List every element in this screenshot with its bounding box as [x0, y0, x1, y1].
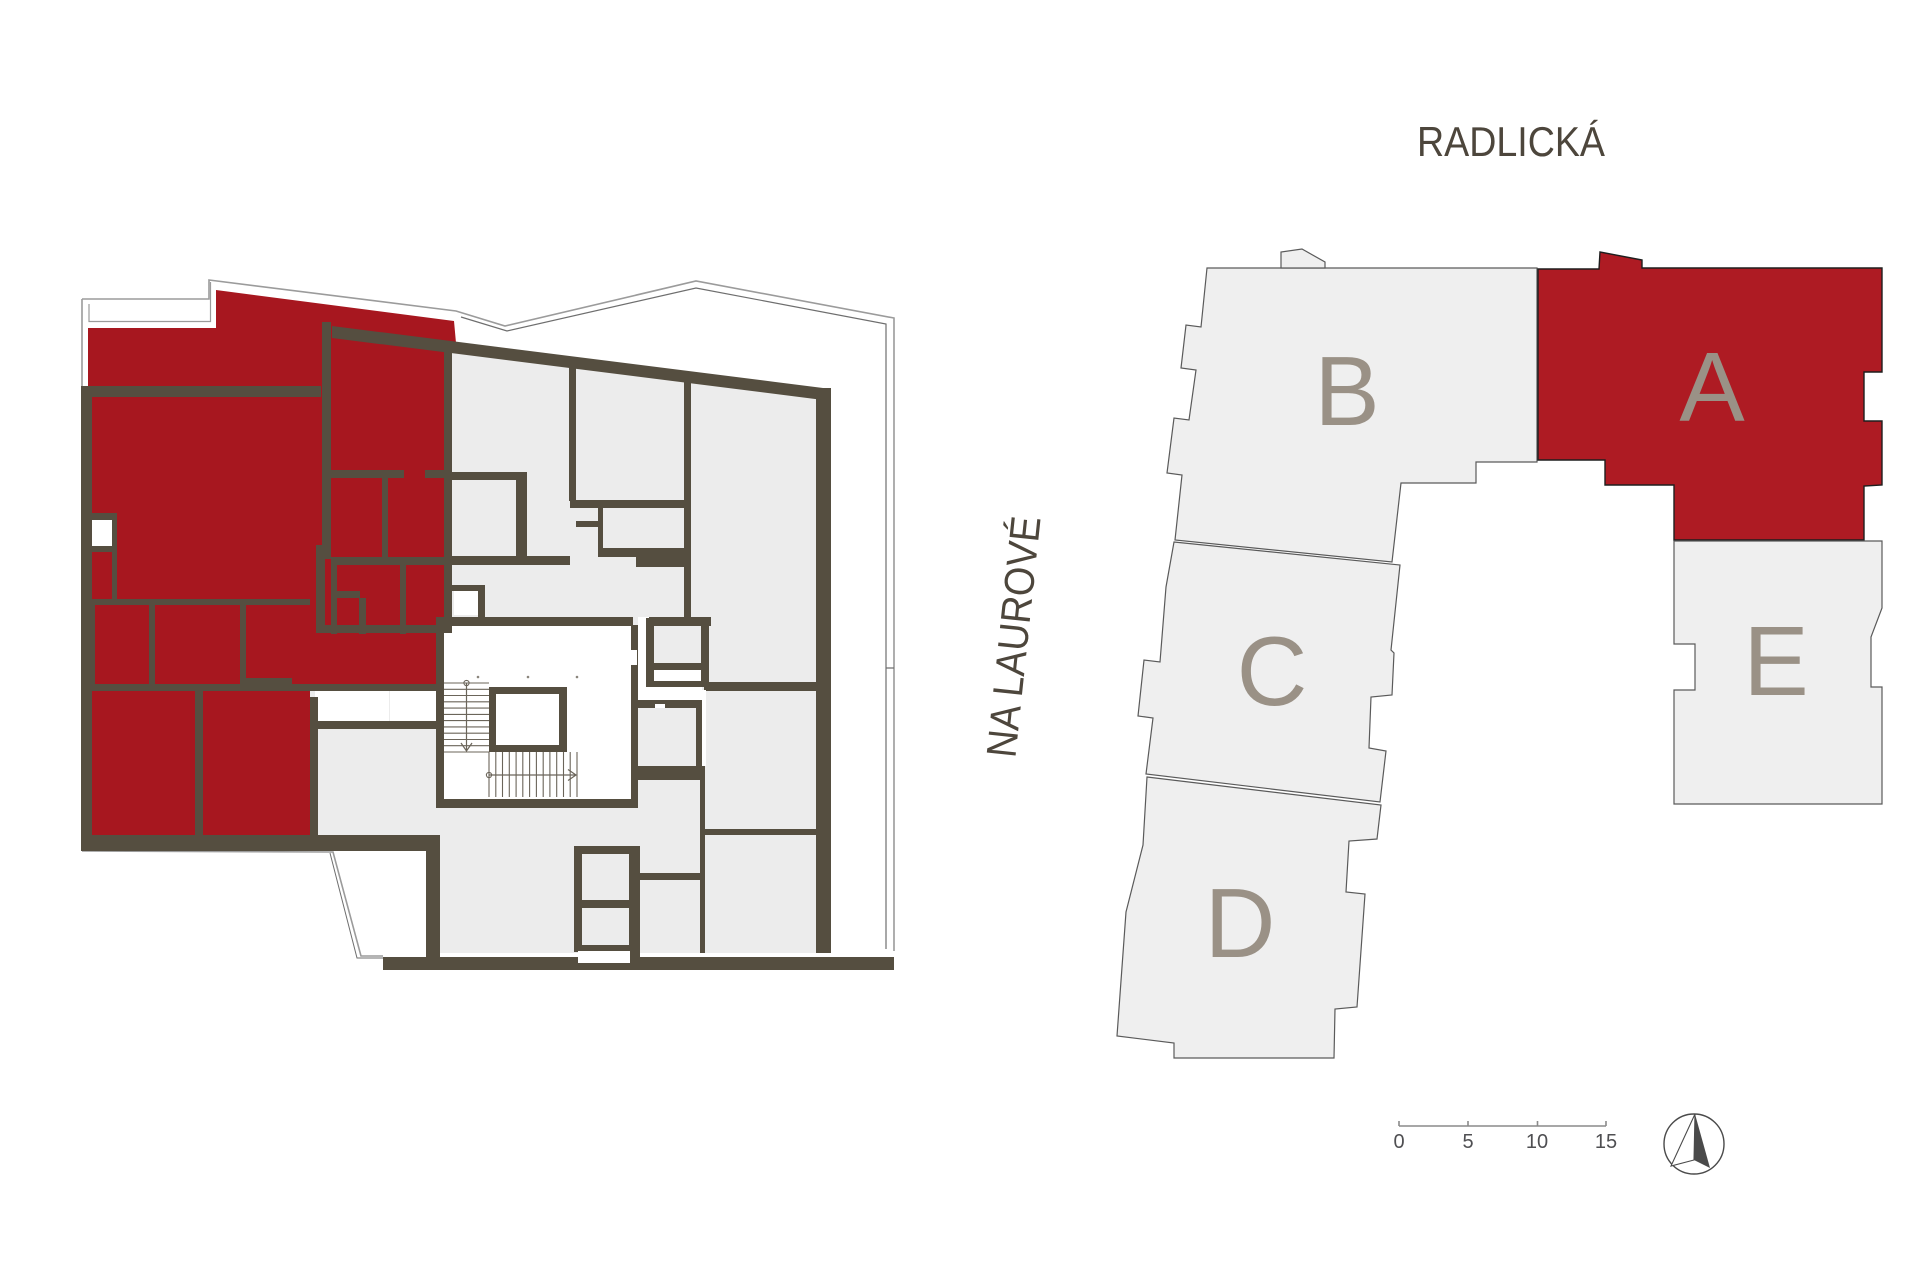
svg-text:C: C	[1237, 616, 1308, 726]
svg-text:E: E	[1743, 606, 1808, 716]
svg-text:A: A	[1679, 332, 1745, 442]
svg-text:NA LAUROVÉ: NA LAUROVÉ	[977, 514, 1049, 760]
svg-text:15: 15	[1595, 1131, 1617, 1153]
svg-text:10: 10	[1526, 1131, 1548, 1153]
svg-text:5: 5	[1462, 1131, 1473, 1153]
svg-text:RADLICKÁ: RADLICKÁ	[1417, 118, 1605, 165]
svg-text:D: D	[1205, 868, 1276, 978]
svg-text:B: B	[1314, 336, 1379, 446]
svg-text:0: 0	[1393, 1131, 1404, 1153]
